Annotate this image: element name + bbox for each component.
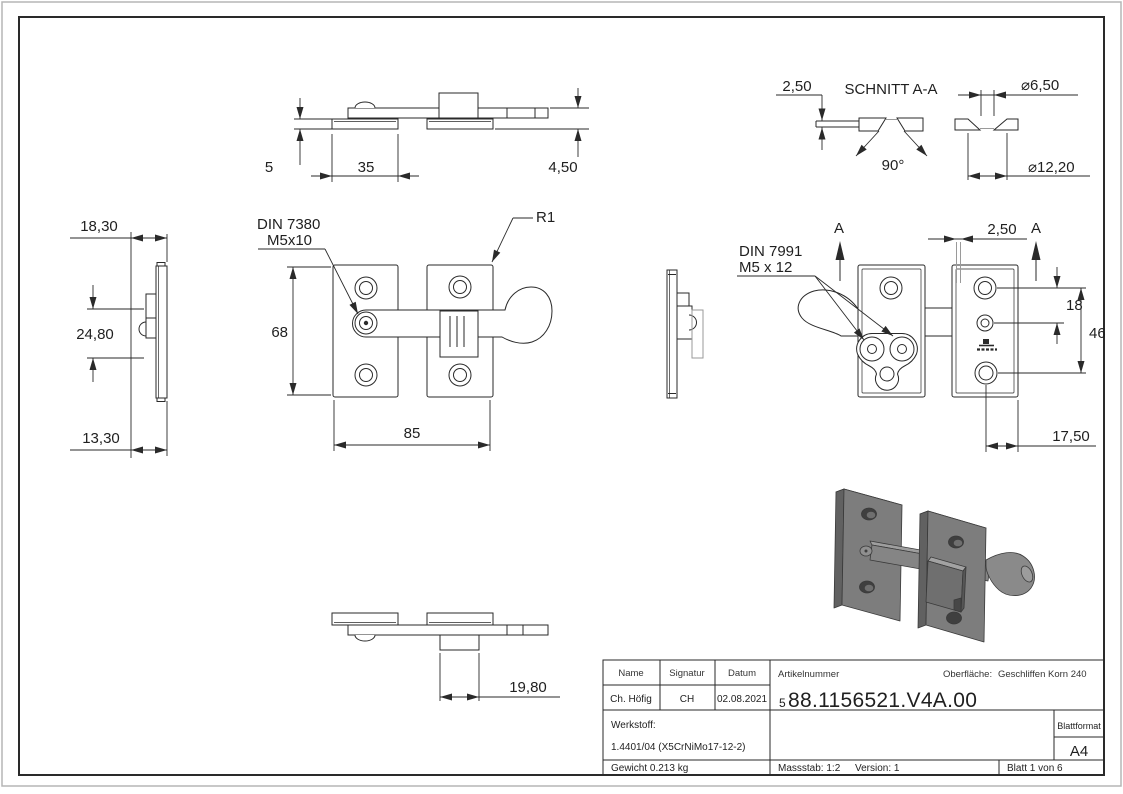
dim-label: 90° xyxy=(882,157,905,174)
bottom-latch-bar xyxy=(348,625,548,635)
value-signatur: CH xyxy=(680,694,694,705)
bottom-keeper-block xyxy=(440,635,479,650)
header-signatur: Signatur xyxy=(669,668,704,679)
screw-hole xyxy=(449,276,471,298)
value-name: Ch. Höfig xyxy=(610,694,652,705)
side-latch-bar xyxy=(146,318,156,338)
screw-hole xyxy=(355,364,377,386)
dim-label: 5 xyxy=(265,159,273,176)
screw-hole xyxy=(974,277,996,299)
drawing-canvas: 18,30 24,80 13,30 xyxy=(0,0,1123,794)
dim-label: 68 xyxy=(271,324,288,341)
dim-label: 18 xyxy=(1066,297,1083,314)
werkstoff-label: Werkstoff: xyxy=(611,720,656,731)
artikelnummer-value: 88.1156521.V4A.00 xyxy=(788,689,977,712)
blatt-value: Blatt 1 von 6 xyxy=(1007,763,1063,774)
oberflaeche-value: Geschliffen Korn 240 xyxy=(998,669,1087,680)
artikelnummer-label: Artikelnummer xyxy=(778,669,839,680)
top-left-plate xyxy=(332,119,398,129)
screw-hole xyxy=(975,362,997,384)
callout-label: M5 x 12 xyxy=(739,259,792,276)
dim-label: 2,50 xyxy=(782,78,811,95)
section-letter: A xyxy=(1031,220,1041,237)
dim-label: 13,30 xyxy=(82,430,120,447)
side-plate-top-cap xyxy=(157,263,165,267)
side-boss xyxy=(146,294,156,318)
latch-slot-hole xyxy=(880,367,894,381)
dim-label: 46 xyxy=(1089,325,1106,342)
section-title: SCHNITT A-A xyxy=(844,81,937,98)
side-plate-bottom-cap xyxy=(157,398,165,402)
header-name: Name xyxy=(618,668,643,679)
iso-keeper-notch xyxy=(954,598,961,612)
dim-label: 85 xyxy=(404,425,421,442)
callout-label: M5x10 xyxy=(267,232,312,249)
massstab-value: Massstab: 1:2 xyxy=(778,763,841,774)
screw-hole xyxy=(977,315,993,331)
werkstoff-value: 1.4401/04 (X5CrNiMo17-12-2) xyxy=(611,742,746,753)
version-value: Version: 1 xyxy=(855,763,900,774)
artikelnummer-prefix: 5 xyxy=(779,696,786,710)
callout-label: DIN 7991 xyxy=(739,243,802,260)
top-right-plate xyxy=(427,119,493,129)
screw-hole xyxy=(880,277,902,299)
gewicht-value: Gewicht 0.213 kg xyxy=(611,763,688,774)
oberflaeche-label: Oberfläche: xyxy=(943,669,992,680)
back-mounting-plate xyxy=(952,265,1018,397)
header-datum: Datum xyxy=(728,668,756,679)
dim-label: 35 xyxy=(358,159,375,176)
value-datum: 02.08.2021 xyxy=(717,694,767,705)
callout-label: R1 xyxy=(536,209,555,226)
blattformat-value: A4 xyxy=(1070,743,1088,760)
countersunk-screw xyxy=(860,337,884,361)
callout-label: DIN 7380 xyxy=(257,216,320,233)
screw-hole xyxy=(449,364,471,386)
dim-label: 24,80 xyxy=(76,326,114,343)
section-letter: A xyxy=(834,220,844,237)
top-keeper-block xyxy=(439,93,478,118)
front-keeper-block xyxy=(440,311,478,357)
bottom-right-plate xyxy=(427,613,493,625)
dim-label: 2,50 xyxy=(987,221,1016,238)
drawing-sheet: 18,30 24,80 13,30 xyxy=(0,0,1123,794)
dim-label: 17,50 xyxy=(1052,428,1090,445)
dim-label: 4,50 xyxy=(548,159,577,176)
blattformat-label: Blattformat xyxy=(1057,721,1101,731)
dim-label: 18,30 xyxy=(80,218,118,235)
bottom-left-plate xyxy=(332,613,398,625)
dim-label: ⌀12,20 xyxy=(1028,159,1075,176)
countersunk-screw xyxy=(890,337,914,361)
dim-label: 19,80 xyxy=(509,679,547,696)
dim-label: ⌀6,50 xyxy=(1021,77,1059,94)
side-plate-outline xyxy=(156,266,167,398)
screw-hole xyxy=(355,277,377,299)
iso-hole xyxy=(947,612,962,624)
